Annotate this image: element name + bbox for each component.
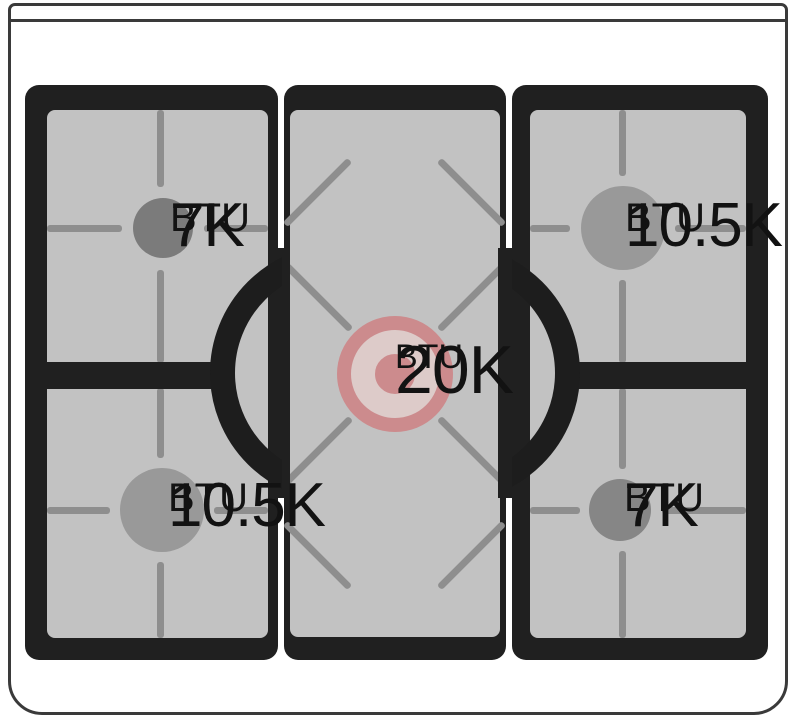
burner-power-unit: BTU (625, 196, 705, 240)
grate-line (619, 280, 626, 363)
burner-power-unit: BTU (624, 476, 704, 520)
grate-line (47, 225, 122, 232)
grate-line (157, 562, 164, 638)
grate-line (619, 110, 626, 176)
grate-line (530, 225, 570, 232)
grate-line (619, 388, 626, 469)
grate-line (157, 110, 164, 187)
grate-line (47, 507, 110, 514)
rangetop-diagram: 7K BTU 10.5K BTU 20K BTU 10.5K BTU 7K BT… (0, 0, 796, 728)
grate-support-bar-right (556, 362, 768, 389)
grate-line (619, 551, 626, 638)
burner-power-unit: BTU (168, 476, 248, 520)
grate-line (157, 270, 164, 363)
backguard-edge-line (9, 19, 787, 22)
burner-power-unit: BTU (170, 196, 250, 240)
burner-power-unit: BTU (395, 338, 463, 376)
grate-line (157, 388, 164, 458)
grate-line (530, 507, 580, 514)
grate-support-bar-left (25, 362, 230, 389)
